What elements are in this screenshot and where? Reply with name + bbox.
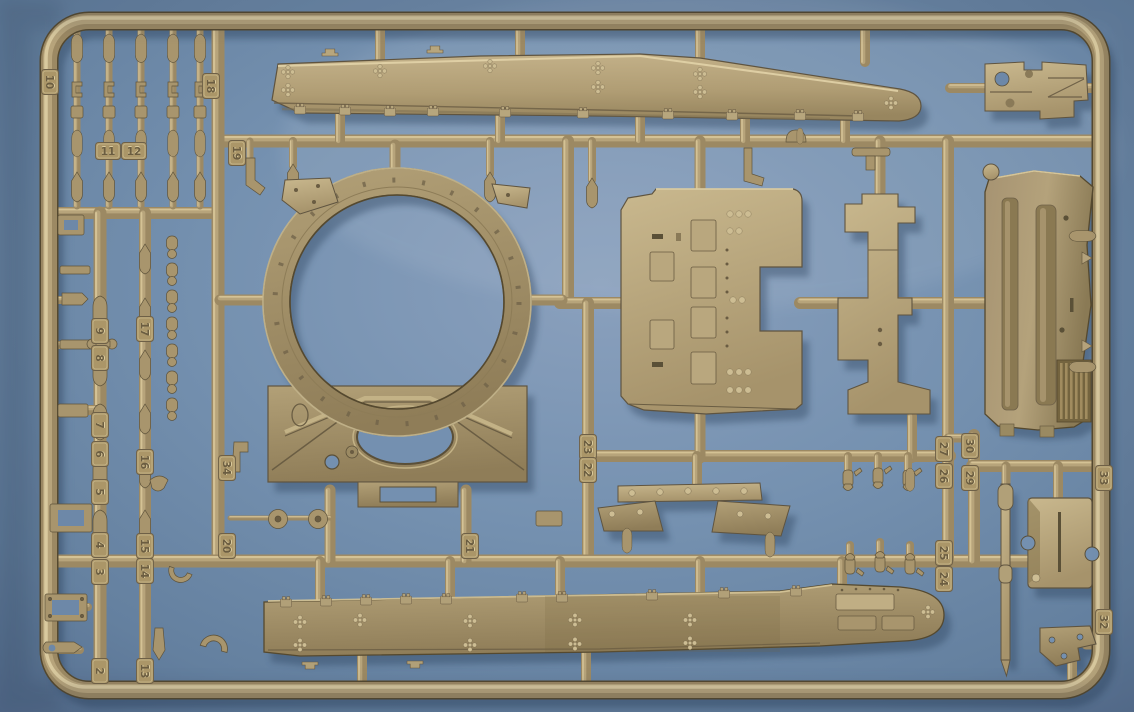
part-number-tag-22: 2222 (580, 458, 597, 483)
tag-number-text: 19 (230, 146, 242, 161)
part-number-tag-19: 1919 (229, 141, 246, 166)
sprue-rail (377, 28, 383, 60)
sprue-rail (337, 112, 343, 141)
sprue-rail (1003, 466, 1009, 484)
part-knob (983, 164, 999, 180)
tag-number-text: 22 (581, 463, 593, 478)
tag-number-text: 2 (93, 667, 105, 674)
tag-number-text: 16 (138, 455, 150, 470)
part-number-tag-13: 1313 (137, 659, 154, 684)
tag-number-text: 33 (1097, 471, 1109, 486)
tag-number-text: 7 (93, 421, 105, 428)
tag-number-text: 30 (963, 439, 975, 454)
sprue-rail (862, 28, 868, 62)
tag-number-text: 25 (937, 546, 949, 561)
sprue-rail (637, 116, 643, 141)
tag-number-text: 11 (101, 146, 116, 158)
part-number-tag-20: 2020 (219, 534, 236, 559)
part-number-tag-2: 22 (92, 659, 109, 684)
tag-number-text: 13 (138, 664, 150, 679)
tag-number-text: 14 (138, 564, 150, 579)
sprue-rail (1055, 466, 1061, 500)
sprue-rail (584, 303, 591, 561)
part-number-tag-4: 44 (92, 533, 109, 558)
part-number-tag-17: 1717 (137, 317, 154, 342)
tag-number-text: 29 (963, 471, 975, 486)
sprue-photo-svg: 1010181811111212191999887766554433221717… (0, 0, 1134, 712)
part-number-tag-33: 3333 (1096, 466, 1113, 491)
tag-number-text: 9 (93, 327, 105, 334)
sprue-rail (530, 297, 562, 304)
tag-number-text: 27 (937, 442, 949, 457)
part-number-tag-18: 1818 (203, 74, 220, 99)
tag-number-text: 15 (138, 539, 150, 554)
tag-number-text: 10 (43, 75, 55, 90)
tag-number-text: 5 (93, 488, 105, 495)
part-number-tag-24: 2424 (936, 567, 953, 592)
sprue-rail (742, 118, 748, 141)
part-engine-panel (983, 164, 1093, 437)
sprue-rail (497, 114, 503, 141)
tag-number-text: 18 (204, 79, 216, 94)
tag-number-text: 4 (93, 541, 105, 548)
part-number-tag-14: 1414 (137, 559, 154, 584)
sprue-rail (327, 490, 334, 561)
tag-number-text: 20 (220, 539, 232, 554)
part-number-tag-8: 88 (92, 346, 109, 371)
part-number-tag-26: 2626 (936, 464, 953, 489)
part-number-tag-25: 2525 (936, 541, 953, 566)
tag-number-text: 23 (581, 440, 593, 455)
part-number-tag-29: 2929 (962, 466, 979, 491)
sprue-rail (697, 561, 703, 595)
tag-number-text: 21 (463, 539, 475, 554)
sprue-rail (588, 452, 950, 459)
part-number-tag-27: 2727 (936, 437, 953, 462)
tag-number-text: 17 (138, 322, 150, 337)
part-number-tag-30: 3030 (962, 434, 979, 459)
tag-number-text: 12 (127, 146, 142, 158)
part-number-tag-9: 99 (92, 319, 109, 344)
part-number-tag-11: 1111 (96, 143, 121, 160)
part-number-tag-32: 3232 (1096, 610, 1113, 635)
sprue-rail (944, 141, 951, 561)
tag-number-text: 24 (937, 572, 949, 587)
part-number-tag-15: 1515 (137, 534, 154, 559)
part-storage-box (1021, 498, 1099, 588)
part-number-tag-5: 55 (92, 480, 109, 505)
sprue-rail (846, 456, 851, 470)
sprue-rail (839, 561, 845, 586)
sprue-rail (291, 141, 296, 166)
part-number-tag-16: 1616 (137, 450, 154, 475)
sprue-rail (564, 141, 571, 303)
photo-model-sprue: Tan injection-molded plastic model kit s… (0, 0, 1134, 712)
tag-number-text: 6 (93, 450, 105, 457)
tag-number-text: 34 (220, 461, 232, 476)
sprue-rail (697, 141, 704, 194)
sprue-rail (220, 297, 266, 304)
sprue-rail (697, 28, 703, 58)
part-number-tag-34: 3434 (219, 456, 236, 481)
sprue-rail (590, 141, 595, 180)
sprue-rail (248, 141, 252, 158)
part-number-tag-23: 2323 (580, 435, 597, 460)
sprue-rail (694, 456, 700, 486)
part-number-tag-6: 66 (92, 442, 109, 467)
tag-number-text: 26 (937, 469, 949, 484)
part-number-tag-10: 1010 (42, 70, 59, 95)
sprue-rail (950, 85, 986, 91)
part-number-tag-12: 1212 (122, 143, 147, 160)
tag-number-text: 3 (93, 568, 105, 575)
tag-number-text: 32 (1097, 615, 1109, 630)
sprue-rail (909, 416, 915, 458)
part-top-right-plate (985, 62, 1088, 119)
tag-number-text: 8 (93, 354, 105, 361)
sprue-rail (222, 137, 1096, 145)
sprue-rail (488, 141, 493, 174)
sprue-rail (972, 462, 1096, 469)
part-number-tag-3: 33 (92, 560, 109, 585)
part-number-tag-21: 2121 (462, 534, 479, 559)
part-number-tag-7: 77 (92, 413, 109, 438)
